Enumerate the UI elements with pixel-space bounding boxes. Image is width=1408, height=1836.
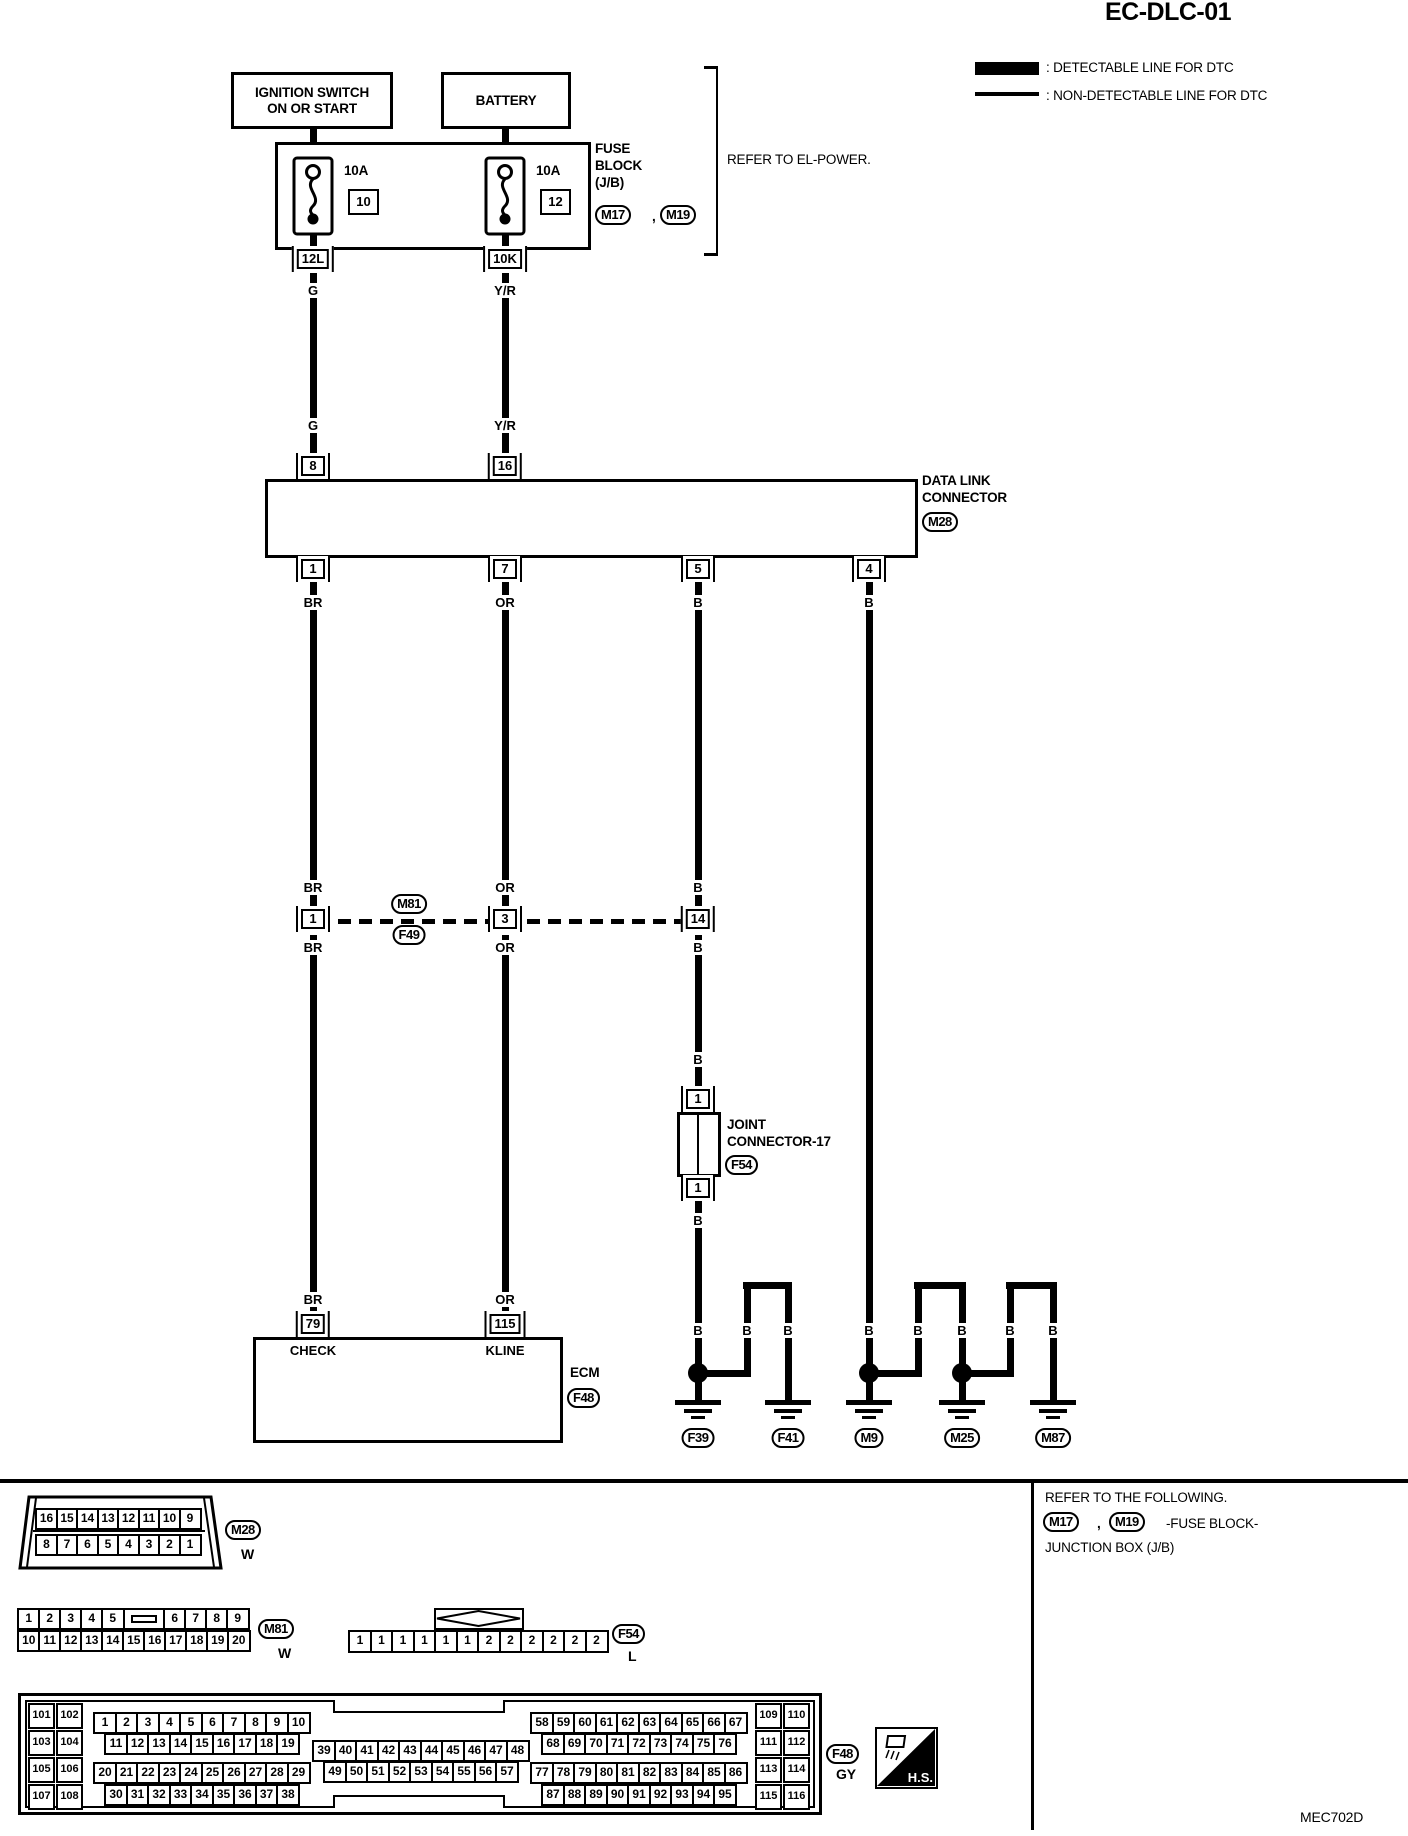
pin-cell: 2 [115, 1712, 139, 1734]
f48-bottom-notch [333, 1795, 505, 1808]
f48-row: 495051525354555657 [323, 1761, 517, 1783]
pin-cell: 1 [17, 1608, 41, 1630]
pin-cell: 56 [474, 1761, 498, 1783]
dlc-label-2: CONNECTOR [922, 489, 1007, 506]
f48-row: 58596061626364656667 [530, 1712, 745, 1734]
battery-box: BATTERY [441, 72, 571, 129]
pin-cell: 52 [388, 1761, 412, 1783]
dlc-label-1: DATA LINK [922, 472, 990, 489]
pin-cell: 5 [179, 1712, 203, 1734]
wire [502, 582, 509, 908]
pin-cell: 18 [255, 1733, 279, 1755]
pin-cell: 39 [312, 1740, 336, 1762]
wire-color-label: B [1045, 1323, 1060, 1338]
pin-cell: 25 [201, 1762, 225, 1784]
pin-cell: 15 [122, 1630, 146, 1652]
pin-cell: 34 [190, 1784, 214, 1806]
pin-cell: 1 [93, 1712, 117, 1734]
pin-cell: 86 [724, 1762, 748, 1784]
comma: , [652, 208, 656, 225]
connector-id-f48: F48 [567, 1388, 600, 1408]
pin-cell: 54 [431, 1761, 455, 1783]
wire-color-label: B [690, 1213, 705, 1228]
pin-cell: 1 [413, 1630, 437, 1653]
pin-cell: 9 [226, 1608, 250, 1630]
pin-cell: 13 [147, 1733, 171, 1755]
pin-cell: 94 [692, 1784, 716, 1806]
hs-logo: H.S. [875, 1727, 938, 1789]
pin-cell: 70 [584, 1733, 608, 1755]
pin-cell: 40 [334, 1740, 358, 1762]
joint-connector-pin-bottom: 1 [681, 1175, 715, 1201]
data-link-connector-box [265, 479, 918, 558]
m28-connector-outline [18, 1495, 224, 1571]
pin-cell: 58 [530, 1712, 554, 1734]
pin-cell: 10 [287, 1712, 311, 1734]
wire-color-label: G [305, 418, 321, 433]
battery-label: BATTERY [476, 93, 537, 109]
wire-color-label: BR [301, 595, 326, 610]
wire-color-label: B [690, 595, 705, 610]
ignition-switch-label-2: ON OR START [267, 101, 357, 117]
pin-cell: 14 [101, 1630, 125, 1652]
wire-color-label: BR [301, 1292, 326, 1307]
pin-cell: 61 [595, 1712, 619, 1734]
m28-pin-row-bottom: 87654321 [35, 1534, 199, 1556]
joint-connector-label-2: CONNECTOR-17 [727, 1133, 831, 1150]
connector-color-code: W [278, 1645, 291, 1662]
pin-cell: 75 [692, 1733, 716, 1755]
pin-cell: 38 [276, 1784, 300, 1806]
pin-cell: 84 [681, 1762, 705, 1784]
pin-cell: 1 [348, 1630, 372, 1653]
pin-cell: 109 [755, 1703, 782, 1729]
pin-cell: 3 [136, 1712, 160, 1734]
fuse-amp-label: 10A [344, 162, 368, 179]
connector-color-code: GY [836, 1766, 856, 1783]
pin-cell: 12 [126, 1733, 150, 1755]
pin-cell: 103 [28, 1730, 55, 1756]
refer-el-power-note: REFER TO EL-POWER. [727, 151, 871, 168]
pin-cell: 89 [584, 1784, 608, 1806]
wire [1050, 1282, 1057, 1400]
joint-connector-body [677, 1112, 721, 1177]
pin-cell: 114 [783, 1757, 810, 1783]
pin-cell: 92 [649, 1784, 673, 1806]
pin-cell: 47 [484, 1740, 508, 1762]
footer-divider [1031, 1483, 1034, 1830]
bracket-tip [704, 253, 718, 256]
m81-key-slot-inner [131, 1615, 157, 1623]
pin-cell: 20 [227, 1630, 251, 1652]
pin-cell: 23 [158, 1762, 182, 1784]
pin-cell: 60 [573, 1712, 597, 1734]
f48-row: 39404142434445464748 [312, 1740, 527, 1762]
wire [310, 935, 317, 1311]
connector-id-f48-footer: F48 [826, 1744, 859, 1764]
fuse-icon [292, 156, 334, 236]
pin-cell: 17 [233, 1733, 257, 1755]
pin-cell: 10 [17, 1630, 41, 1652]
pin-cell: 83 [659, 1762, 683, 1784]
pin-cell: 8 [244, 1712, 268, 1734]
pin-cell: 79 [573, 1762, 597, 1784]
connector-color-code: L [628, 1648, 636, 1665]
refer-fuse-block-suffix: -FUSE BLOCK- [1166, 1515, 1258, 1532]
pin-cell: 31 [126, 1784, 150, 1806]
pin-cell: 24 [179, 1762, 203, 1784]
legend-detectable: : DETECTABLE LINE FOR DTC [1046, 59, 1234, 76]
ignition-switch-box: IGNITION SWITCH ON OR START [231, 72, 393, 129]
pin-cell: 15 [190, 1733, 214, 1755]
pin-cell: 73 [649, 1733, 673, 1755]
ground-id-m9: M9 [854, 1428, 883, 1448]
pin-cell: 88 [563, 1784, 587, 1806]
pin-cell: 41 [355, 1740, 379, 1762]
pin-cell: 51 [366, 1761, 390, 1783]
pin-cell: 93 [670, 1784, 694, 1806]
pin-cell: 108 [56, 1784, 83, 1810]
mid-connector-pin-1: 1 [296, 906, 330, 932]
pin-cell: 32 [147, 1784, 171, 1806]
pin-cell: 1 [370, 1630, 394, 1653]
detectable-line-swatch [975, 62, 1039, 75]
connector-id-m17: M17 [595, 205, 631, 225]
pin-cell: 22 [136, 1762, 160, 1784]
f48-left-pairs: 101102103104105106107108 [28, 1703, 83, 1810]
mid-connector-pin-3: 3 [488, 906, 522, 932]
wire [959, 1380, 966, 1402]
pin-cell: 50 [345, 1761, 369, 1783]
pin-cell: 106 [56, 1757, 83, 1783]
junction-dot [952, 1363, 972, 1383]
doc-code: MEC702D [1300, 1809, 1363, 1826]
pin-cell: 19 [206, 1630, 230, 1652]
fuse-icon [484, 156, 526, 236]
f48-row: 111213141516171819 [104, 1733, 298, 1755]
pin-cell: 111 [755, 1730, 782, 1756]
wire-color-label: OR [492, 1292, 518, 1307]
pin-cell: 72 [627, 1733, 651, 1755]
bracket [716, 66, 719, 256]
m81-pin-row-top-right: 6789 [163, 1608, 247, 1630]
dlc-pin-1: 1 [296, 556, 330, 582]
wire-color-label: B [861, 595, 876, 610]
pin-cell: 20 [93, 1762, 117, 1784]
ground-icon [765, 1400, 811, 1419]
pin-cell: 33 [169, 1784, 193, 1806]
connector-id-f54-footer: F54 [612, 1624, 645, 1644]
pin-cell: 53 [409, 1761, 433, 1783]
pin-cell: 78 [552, 1762, 576, 1784]
wire-color-label: B [1002, 1323, 1017, 1338]
ecm-label: ECM [570, 1364, 599, 1381]
f54-keyway [434, 1608, 524, 1630]
pin-cell: 105 [28, 1757, 55, 1783]
pin-cell: 2 [542, 1630, 566, 1653]
wire [310, 582, 317, 908]
pin-cell: 7 [222, 1712, 246, 1734]
pin-cell: 21 [115, 1762, 139, 1784]
wire-color-label: B [690, 1323, 705, 1338]
pin-cell: 2 [499, 1630, 523, 1653]
pin-cell: 19 [276, 1733, 300, 1755]
f48-top-notch [333, 1700, 505, 1713]
pin-cell: 11 [38, 1630, 62, 1652]
pin-cell: 30 [104, 1784, 128, 1806]
wire-color-label: B [910, 1323, 925, 1338]
pin-cell: 91 [627, 1784, 651, 1806]
ecm-pin-79: 79 [296, 1311, 330, 1337]
bracket-tip [704, 66, 718, 69]
pin-cell: 16 [212, 1733, 236, 1755]
joint-connector-label-1: JOINT [727, 1116, 766, 1133]
dlc-pin-7: 7 [488, 556, 522, 582]
wire-color-label: BR [301, 880, 326, 895]
joint-connector-divider [697, 1115, 699, 1174]
pin-cell: 28 [265, 1762, 289, 1784]
pin-cell: 2 [520, 1630, 544, 1653]
pin-cell: 80 [595, 1762, 619, 1784]
pin-cell: 74 [670, 1733, 694, 1755]
wire-color-label: OR [492, 595, 518, 610]
pin-cell: 68 [541, 1733, 565, 1755]
wire-color-label: OR [492, 940, 518, 955]
pin-cell: 2 [563, 1630, 587, 1653]
m28-pin-row-top: 161514131211109 [35, 1508, 199, 1530]
m28-rib [33, 1530, 205, 1532]
pin-cell: 95 [713, 1784, 737, 1806]
pin-cell: 63 [638, 1712, 662, 1734]
hs-label: H.S. [908, 1770, 933, 1785]
pin-cell: 107 [28, 1784, 55, 1810]
pin-cell: 101 [28, 1703, 55, 1729]
pin-cell: 102 [56, 1703, 83, 1729]
dlc-pin-5: 5 [681, 556, 715, 582]
pin-cell: 66 [702, 1712, 726, 1734]
pin-cell: 1 [179, 1534, 202, 1556]
pin-cell: 49 [323, 1761, 347, 1783]
ecm-check-label: CHECK [287, 1343, 339, 1358]
pin-cell: 27 [244, 1762, 268, 1784]
pin-cell: 65 [681, 1712, 705, 1734]
pin-cell: 116 [783, 1784, 810, 1810]
m81-pin-row-top-left: 12345 [17, 1608, 122, 1630]
pin-cell: 8 [205, 1608, 229, 1630]
dlc-pin-16: 16 [488, 453, 522, 479]
refer-following-line1: REFER TO THE FOLLOWING. [1045, 1489, 1227, 1506]
pin-cell: 1 [434, 1630, 458, 1653]
fuse-number-box: 12 [540, 189, 571, 215]
pin-cell: 81 [616, 1762, 640, 1784]
refer-id-m19: M19 [1109, 1512, 1145, 1532]
pin-cell: 6 [163, 1608, 187, 1630]
pin-cell: 85 [702, 1762, 726, 1784]
ground-id-m87: M87 [1035, 1428, 1071, 1448]
pin-cell: 110 [783, 1703, 810, 1729]
connector-id-m81: M81 [391, 894, 427, 914]
wire [785, 1282, 792, 1400]
wire-color-label: Y/R [491, 283, 519, 298]
pin-cell: 17 [164, 1630, 188, 1652]
connector-id-f54: F54 [725, 1155, 758, 1175]
pin-cell: 4 [80, 1608, 104, 1630]
pin-cell: 5 [101, 1608, 125, 1630]
legend-non-detectable: : NON-DETECTABLE LINE FOR DTC [1046, 87, 1267, 104]
refer-junction-box-line: JUNCTION BOX (J/B) [1045, 1539, 1174, 1556]
pin-cell: 37 [255, 1784, 279, 1806]
pin-cell: 42 [377, 1740, 401, 1762]
connector-id-m81-footer: M81 [258, 1619, 294, 1639]
pin-cell: 82 [638, 1762, 662, 1784]
pin-cell: 13 [80, 1630, 104, 1652]
wire-color-label: B [954, 1323, 969, 1338]
f48-row: 20212223242526272829 [93, 1762, 308, 1784]
pin-cell: 76 [713, 1733, 737, 1755]
pin-cell: 44 [420, 1740, 444, 1762]
pin-cell: 11 [104, 1733, 128, 1755]
f48-row: 686970717273747576 [541, 1733, 735, 1755]
fuse-block-terminal-10K: 10K [483, 246, 527, 272]
wire-color-label: BR [301, 940, 326, 955]
pin-cell: 1 [456, 1630, 480, 1653]
wire-color-label: B [690, 940, 705, 955]
pin-cell: 2 [477, 1630, 501, 1653]
wire [695, 582, 702, 908]
non-detectable-line-swatch [975, 92, 1039, 96]
pin-cell: 90 [606, 1784, 630, 1806]
f48-row: 77787980818283848586 [530, 1762, 745, 1784]
connector-id-m19: M19 [660, 205, 696, 225]
wire-color-label: Y/R [491, 418, 519, 433]
pin-cell: 12 [59, 1630, 83, 1652]
m81-key-slot [122, 1608, 165, 1630]
page-title: EC-DLC-01 [1105, 4, 1231, 21]
pin-cell: 69 [563, 1733, 587, 1755]
dlc-pin-8: 8 [296, 453, 330, 479]
f48-row: 878889909192939495 [541, 1784, 735, 1806]
pin-cell: 77 [530, 1762, 554, 1784]
fuse-number-box: 10 [348, 189, 379, 215]
dlc-pin-4: 4 [852, 556, 886, 582]
pin-cell: 87 [541, 1784, 565, 1806]
connector-id-m28-footer: M28 [225, 1520, 261, 1540]
f48-row: 12345678910 [93, 1712, 308, 1734]
ground-icon [675, 1400, 721, 1419]
pin-cell: 46 [463, 1740, 487, 1762]
wire-color-label: B [861, 1323, 876, 1338]
mid-connector-pin-14: 14 [681, 906, 715, 932]
pin-cell: 45 [441, 1740, 465, 1762]
pin-cell: 7 [184, 1608, 208, 1630]
ground-icon [939, 1400, 985, 1419]
pin-cell: 26 [222, 1762, 246, 1784]
pin-cell: 59 [552, 1712, 576, 1734]
fuse-amp-label: 10A [536, 162, 560, 179]
pin-cell: 6 [201, 1712, 225, 1734]
pin-cell: 55 [452, 1761, 476, 1783]
f48-right-pairs: 109110111112113114115116 [755, 1703, 810, 1810]
fuse-block-label-1: FUSE [595, 140, 630, 157]
ignition-switch-label-1: IGNITION SWITCH [255, 85, 369, 101]
pin-cell: 36 [233, 1784, 257, 1806]
pin-cell: 112 [783, 1730, 810, 1756]
pin-cell: 14 [169, 1733, 193, 1755]
ecm-kline-label: KLINE [483, 1343, 528, 1358]
pin-cell: 113 [755, 1757, 782, 1783]
ground-id-m25: M25 [944, 1428, 980, 1448]
junction-dot [859, 1363, 879, 1383]
wire-color-label: B [739, 1323, 754, 1338]
pin-cell: 35 [212, 1784, 236, 1806]
fuse-block-label-3: (J/B) [595, 174, 624, 191]
refer-id-m17: M17 [1043, 1512, 1079, 1532]
comma: , [1097, 1515, 1101, 1532]
ground-id-f39: F39 [682, 1428, 715, 1448]
wire [866, 1380, 873, 1402]
pin-cell: 29 [287, 1762, 311, 1784]
fuse-block-label-2: BLOCK [595, 157, 642, 174]
pin-cell: 2 [585, 1630, 609, 1653]
wire-color-label: G [305, 283, 321, 298]
connector-color-code: W [241, 1546, 254, 1563]
wire [695, 1380, 702, 1402]
pin-cell: 104 [56, 1730, 83, 1756]
pin-cell: 18 [185, 1630, 209, 1652]
f54-pin-row: 111111222222 [348, 1630, 606, 1653]
wire-color-label: B [690, 880, 705, 895]
m81-pin-row-bottom: 1011121314151617181920 [17, 1630, 248, 1652]
wire [866, 582, 873, 1366]
pin-cell: 4 [158, 1712, 182, 1734]
pin-cell: 3 [59, 1608, 83, 1630]
pin-cell: 1 [391, 1630, 415, 1653]
pin-cell: 71 [606, 1733, 630, 1755]
fuse-block-terminal-12L: 12L [292, 246, 334, 272]
pin-cell: 48 [506, 1740, 530, 1762]
f48-row: 303132333435363738 [104, 1784, 298, 1806]
pin-cell: 9 [179, 1508, 202, 1530]
wire [502, 935, 509, 1311]
ground-icon [846, 1400, 892, 1419]
pin-cell: 57 [495, 1761, 519, 1783]
pin-cell: 43 [398, 1740, 422, 1762]
pin-cell: 9 [265, 1712, 289, 1734]
pin-cell: 2 [38, 1608, 62, 1630]
pin-cell: 16 [143, 1630, 167, 1652]
wiring-diagram-page: EC-DLC-01 : DETECTABLE LINE FOR DTC : NO… [0, 0, 1408, 1836]
connector-id-m28: M28 [922, 512, 958, 532]
pin-cell: 115 [755, 1784, 782, 1810]
pin-cell: 64 [659, 1712, 683, 1734]
wire-color-label: B [690, 1052, 705, 1067]
section-divider [0, 1479, 1408, 1483]
ground-id-f41: F41 [772, 1428, 805, 1448]
joint-connector-pin-top: 1 [681, 1086, 715, 1112]
pin-cell: 62 [616, 1712, 640, 1734]
ground-icon [1030, 1400, 1076, 1419]
junction-dot [688, 1363, 708, 1383]
wire-color-label: B [780, 1323, 795, 1338]
ecm-pin-115: 115 [485, 1311, 526, 1337]
connector-id-f49: F49 [393, 925, 426, 945]
pin-cell: 67 [724, 1712, 748, 1734]
wire-color-label: OR [492, 880, 518, 895]
